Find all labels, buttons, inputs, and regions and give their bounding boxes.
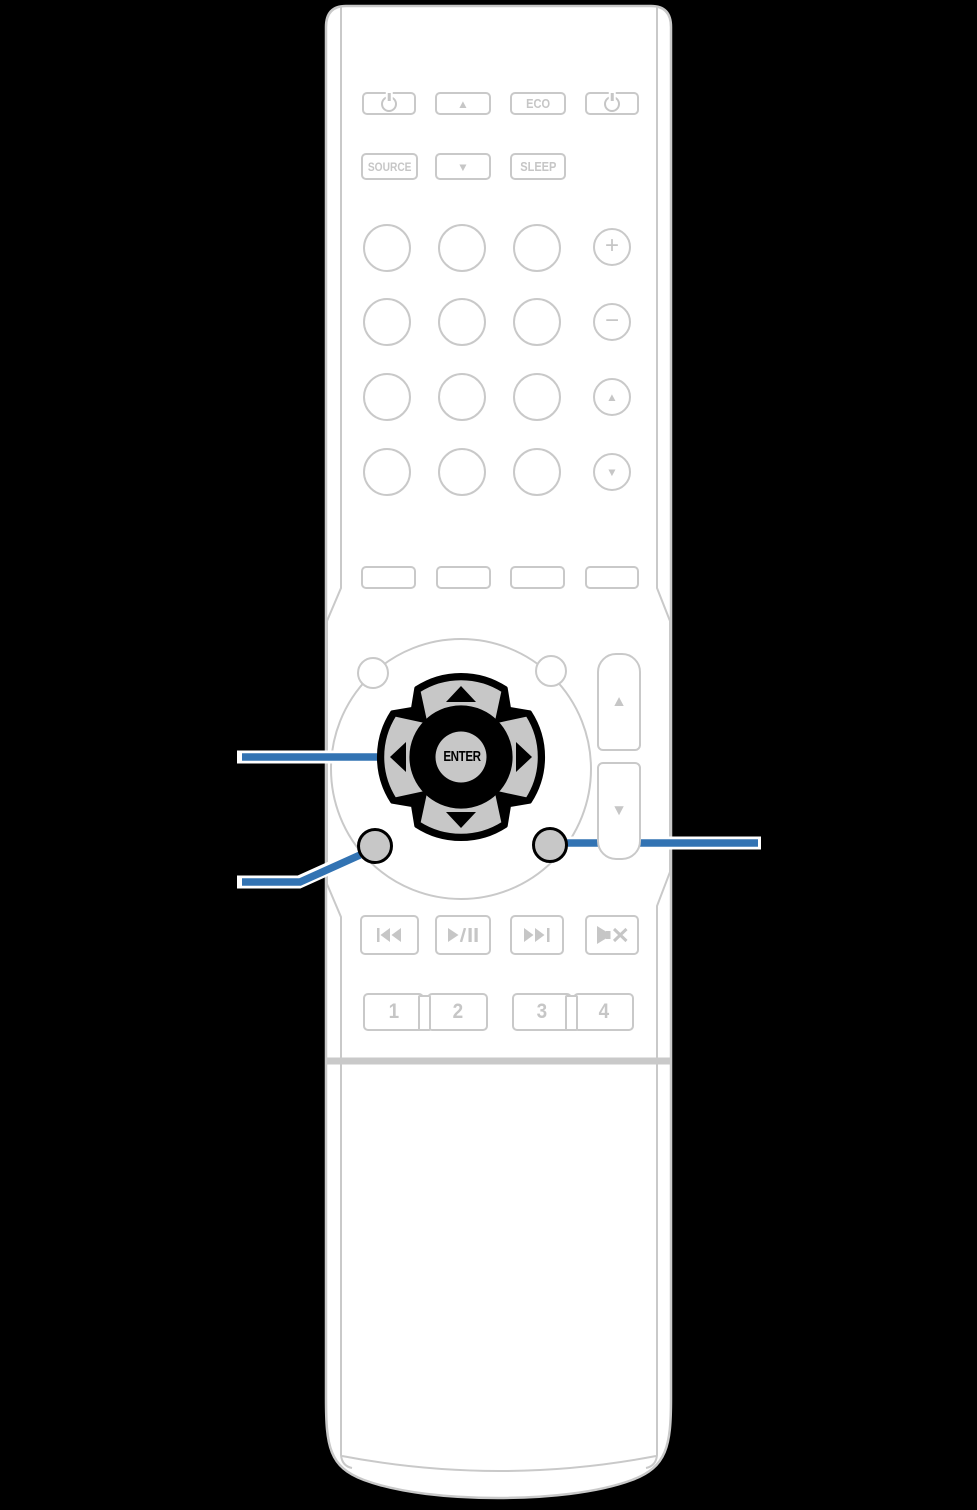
skip-forward-button[interactable] [510,915,564,955]
bluetooth-button[interactable] [438,448,486,496]
triangle-up-icon: ▲ [611,694,627,709]
quick-select-4-button[interactable]: 4 [573,993,634,1031]
pure-button[interactable] [585,566,639,589]
play-pause-icon [448,928,479,942]
main-power-button[interactable] [585,92,639,115]
triangle-up-icon: ▲ [457,98,469,109]
skip-back-icon [377,928,403,942]
callout-back-casing [237,854,361,882]
triangle-up-icon: ▲ [606,391,618,402]
minus-icon: − [605,309,619,333]
internet-radio-button[interactable] [513,448,561,496]
source-button[interactable]: SOURCE [361,153,418,180]
game-button[interactable] [363,298,411,346]
skip-back-button[interactable] [360,915,419,955]
enter-label[interactable]: ENTER [438,749,486,765]
tuner-button[interactable] [513,373,561,421]
sound-game-button[interactable] [510,566,565,589]
quick-select-1-button[interactable]: 1 [363,993,424,1031]
triangle-down-icon: ▼ [606,466,618,477]
zone2-power-button[interactable] [362,92,416,115]
zone2-volume-down-button[interactable]: ▼ [435,153,491,180]
music-button[interactable] [436,566,491,589]
mute-speaker-icon [597,926,628,944]
tv-audio-button[interactable] [438,373,486,421]
quick-select-divider [418,995,431,1031]
quick-select-3-button[interactable]: 3 [512,993,572,1031]
channel-up-button[interactable]: + [593,228,631,266]
triangle-down-icon: ▼ [611,803,627,818]
aux-button[interactable] [438,298,486,346]
zone2-volume-up-button[interactable]: ▲ [435,92,491,115]
channel-down-button[interactable]: − [593,303,631,341]
movie-button[interactable] [361,566,416,589]
bluray-button[interactable] [513,224,561,272]
power-icon [381,96,397,112]
volume-up-button[interactable]: ▲ [597,653,641,751]
dvd-bluray-button[interactable] [438,224,486,272]
cbl-sat-button[interactable] [363,224,411,272]
sleep-button[interactable]: SLEEP [510,153,566,180]
page-up-button[interactable]: ▲ [593,378,631,416]
skip-forward-icon [524,928,550,942]
remote-control-diagram: ZONE 2 POWER ▲ ECO VOLUME SOURCE ▼ SLEEP… [0,0,977,1510]
plus-icon: + [605,234,619,258]
quick-select-2-button[interactable]: 2 [427,993,488,1031]
media-player-button[interactable] [513,298,561,346]
eco-button[interactable]: ECO [510,92,566,115]
ipod-usb-button[interactable] [363,373,411,421]
power-icon [604,96,620,112]
triangle-down-icon: ▼ [457,161,469,172]
page-down-button[interactable]: ▼ [593,453,631,491]
mute-button[interactable] [585,915,639,955]
quick-select-divider [565,995,578,1031]
play-pause-button[interactable] [435,915,491,955]
online-music-button[interactable] [363,448,411,496]
volume-down-button[interactable]: ▼ [597,762,641,860]
